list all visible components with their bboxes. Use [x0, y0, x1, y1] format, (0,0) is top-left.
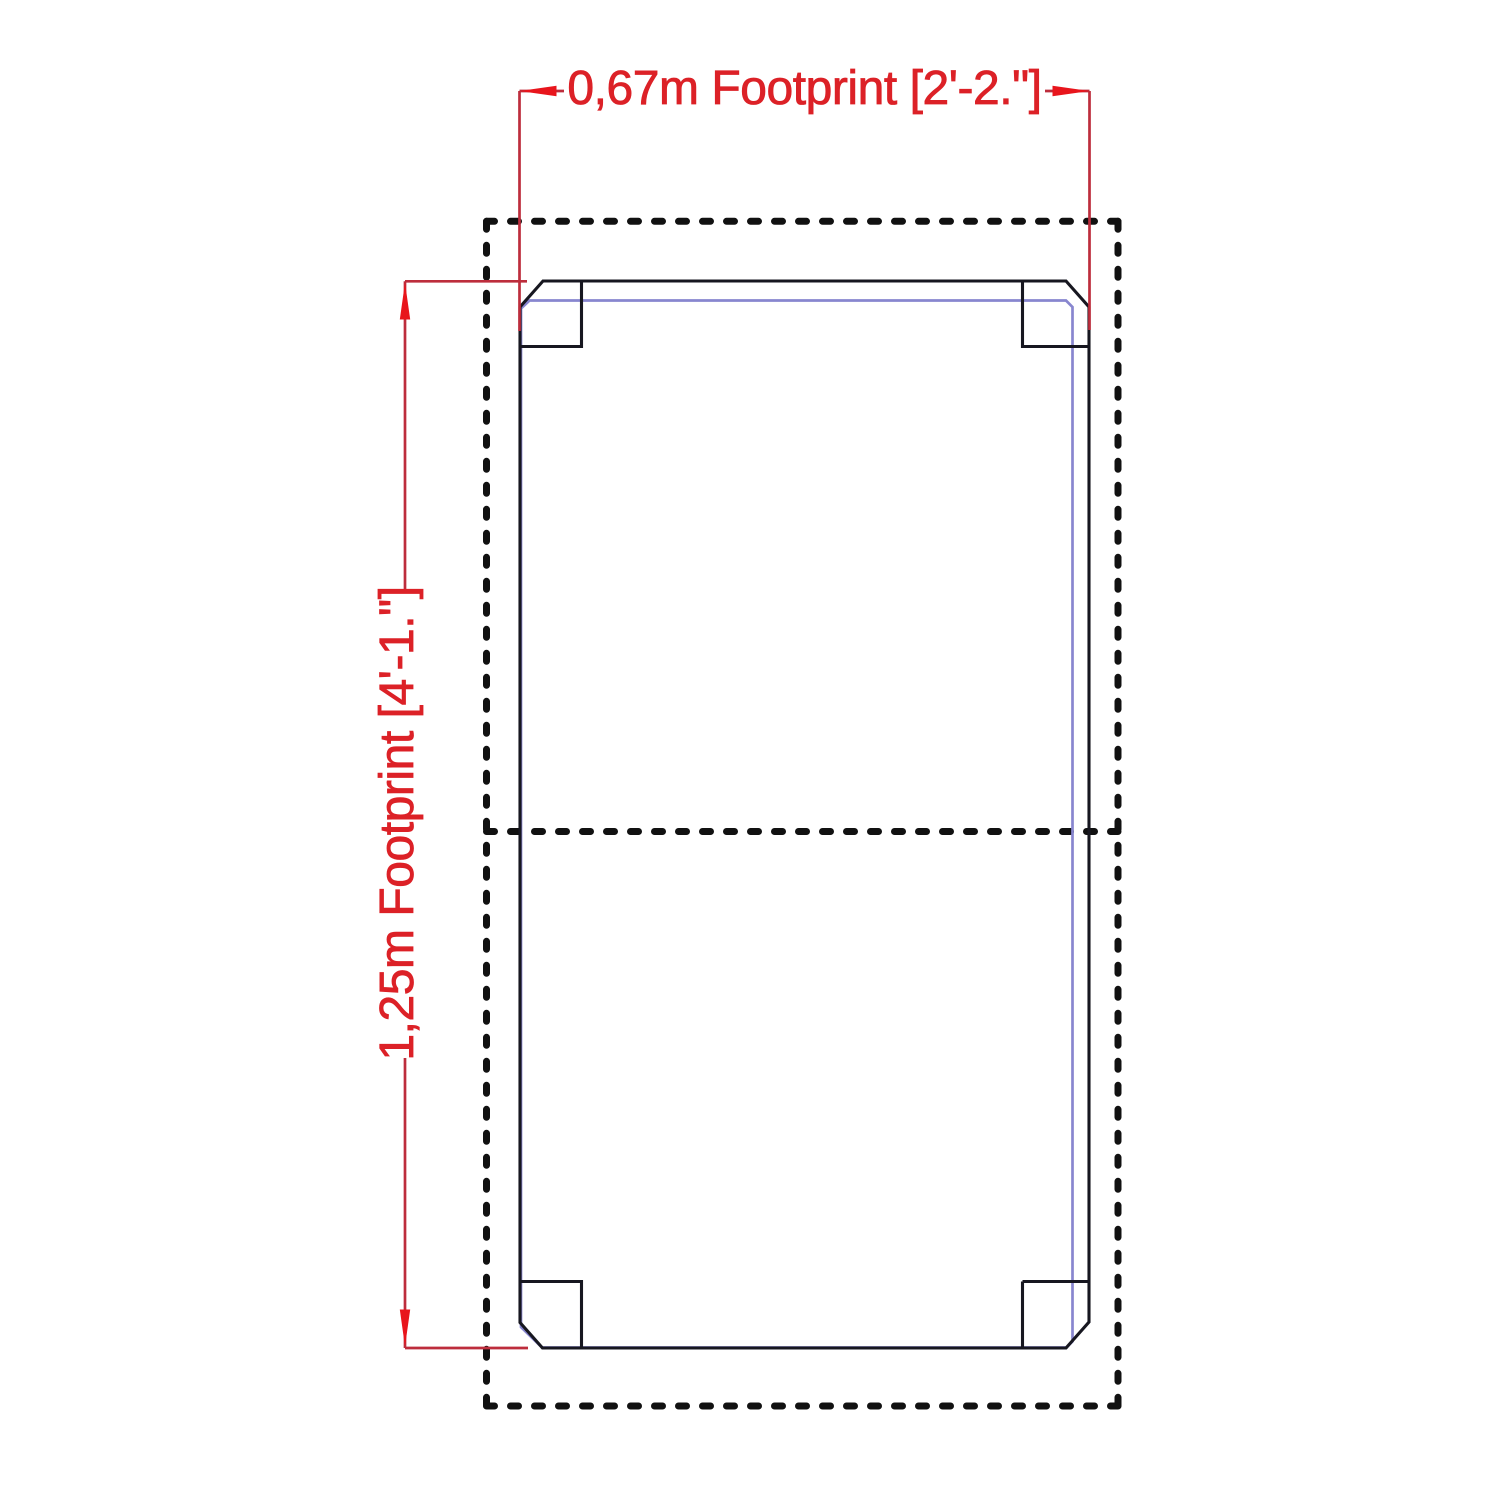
svg-text:1,25m Footprint [4'-1."]: 1,25m Footprint [4'-1."] [371, 586, 424, 1060]
svg-text:0,67m Footprint [2'-2."]: 0,67m Footprint [2'-2."] [567, 62, 1041, 115]
